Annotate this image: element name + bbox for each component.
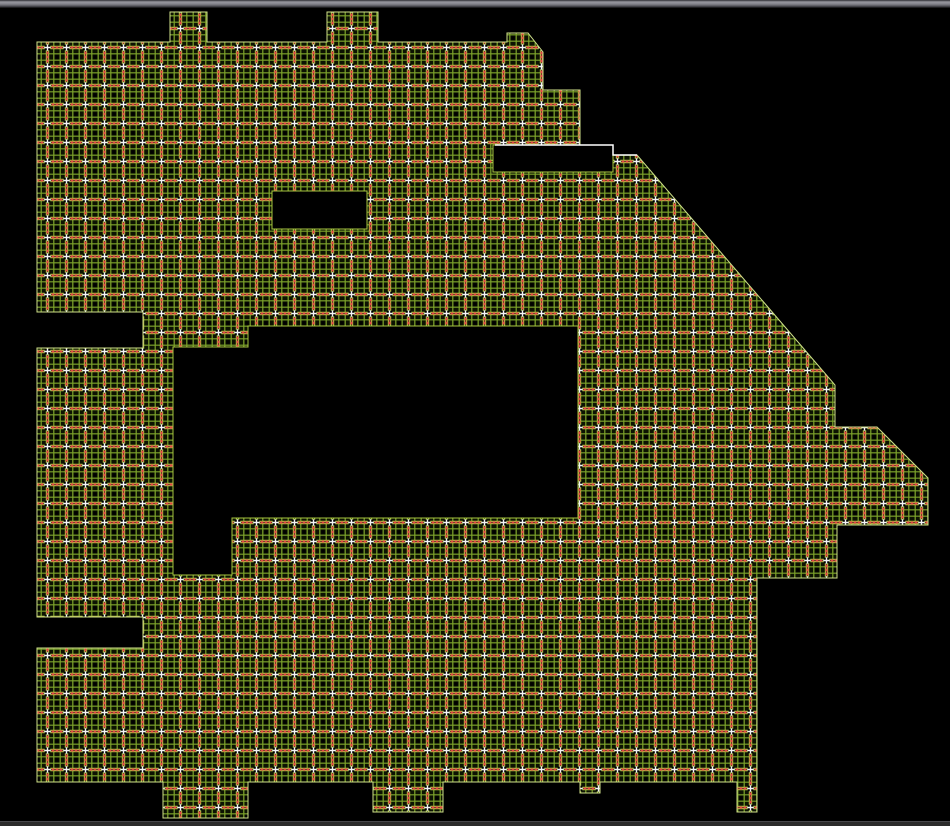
cad-viewport [0,0,950,826]
drawing-canvas[interactable] [0,0,950,826]
window-top-bar [0,0,950,8]
status-bottom-bar [0,821,950,826]
top-right-notch [493,145,613,172]
small-upper-opening [272,191,367,229]
